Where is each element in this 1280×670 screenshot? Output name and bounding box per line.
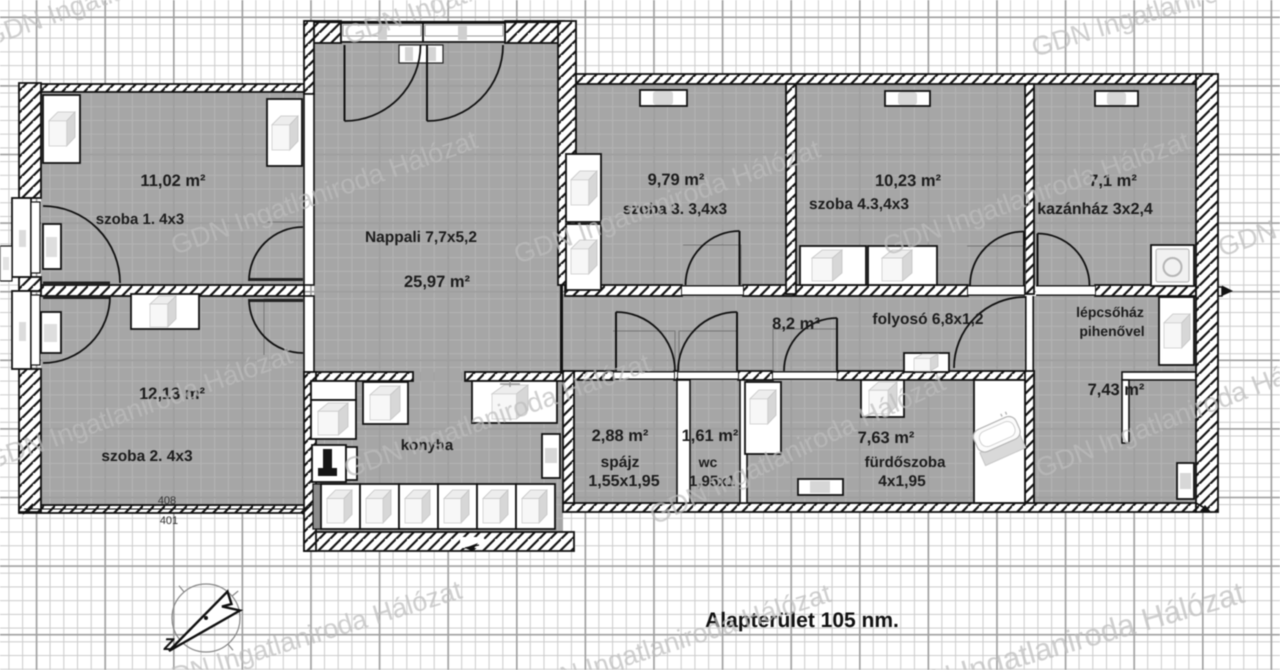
svg-text:fürdőszoba: fürdőszoba [865, 454, 946, 471]
svg-text:1,55x1,95: 1,55x1,95 [588, 473, 659, 490]
svg-text:25,97 m²: 25,97 m² [404, 273, 471, 291]
svg-text:4x1,95: 4x1,95 [878, 473, 926, 490]
svg-text:401: 401 [160, 515, 178, 527]
svg-text:Nappali 7,7x5,2: Nappali 7,7x5,2 [365, 229, 477, 246]
svg-text:7,43 m²: 7,43 m² [1088, 381, 1145, 399]
svg-text:408: 408 [158, 495, 176, 507]
svg-text:lépcsőház: lépcsőház [1076, 304, 1144, 320]
svg-text:szoba 2. 4x3: szoba 2. 4x3 [101, 448, 193, 465]
svg-text:11,02 m²: 11,02 m² [140, 172, 206, 190]
svg-text:pihenővel: pihenővel [1079, 323, 1144, 339]
svg-text:szoba 4.3,4x3: szoba 4.3,4x3 [809, 196, 909, 213]
svg-text:10,23 m²: 10,23 m² [875, 172, 942, 190]
svg-text:szoba 1. 4x3: szoba 1. 4x3 [96, 211, 184, 228]
svg-text:2,88 m²: 2,88 m² [592, 427, 649, 445]
svg-text:folyosó 6,8x1,2: folyosó 6,8x1,2 [872, 311, 983, 328]
svg-text:8,2 m²: 8,2 m² [772, 315, 820, 333]
svg-text:Z: Z [163, 635, 175, 654]
svg-text:1,61 m²: 1,61 m² [682, 427, 739, 445]
svg-text:kazánház 3x2,4: kazánház 3x2,4 [1037, 201, 1153, 218]
svg-text:wc: wc [698, 454, 718, 470]
svg-text:spájz: spájz [601, 454, 640, 471]
